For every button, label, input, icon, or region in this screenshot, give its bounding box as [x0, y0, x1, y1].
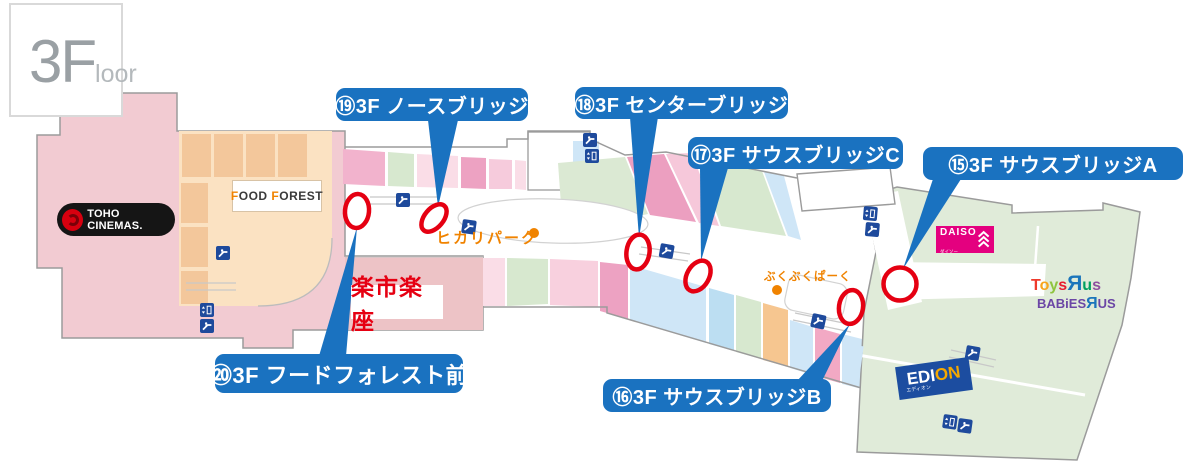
- food-forest-logo: FOOD FOREST: [232, 180, 322, 212]
- banner-20-food-forest-mae[interactable]: ⑳3F フードフォレスト前: [215, 354, 463, 393]
- toysrus-letter: u: [1082, 277, 1092, 294]
- toho-cinemas-logo: TOHO CINEMAS.: [57, 203, 175, 236]
- daiso-logo: DAISO ダイソー: [936, 226, 994, 253]
- toysrus-letter: T: [1031, 277, 1040, 294]
- babiesrus-r: Я: [1086, 295, 1098, 312]
- daiso-sub: ダイソー: [940, 249, 958, 254]
- food-forest-orest: OREST: [279, 189, 323, 203]
- edion-sub: エディオン: [898, 386, 931, 395]
- babiesrus-us: US: [1098, 296, 1116, 311]
- toysrus-letter-r: Я: [1067, 272, 1082, 295]
- bukubuku-park-label: ぶくぶくぱーく: [764, 268, 852, 284]
- edion-ed: EDI: [906, 367, 936, 388]
- bukubuku-park-dot: [772, 285, 782, 295]
- north-east-block: [797, 167, 895, 211]
- babiesrus-logo: BABiESЯUS: [1037, 295, 1116, 313]
- toho-cinemas-icon: [62, 209, 83, 231]
- toho-cinemas-label: TOHO CINEMAS.: [87, 208, 175, 232]
- rakuichi-rakuza-logo: 楽市楽座: [351, 285, 443, 319]
- marker-20: [344, 193, 371, 229]
- mall-map-canvas: [0, 0, 1191, 468]
- banner-16-south-bridge-b[interactable]: ⑯3F サウスブリッジB: [603, 379, 831, 412]
- banner-18-center-bridge[interactable]: ⑱3F センターブリッジ: [575, 87, 788, 119]
- floor-number: 3F: [29, 28, 95, 95]
- edion-on: ON: [934, 363, 962, 383]
- hikari-park-label: ヒカリパーク: [436, 227, 538, 248]
- floor-map-3f: 3Floor TOHO CINEMAS. FOOD FOREST 楽市楽座 ヒカ…: [0, 0, 1191, 468]
- food-forest-ood: OOD: [239, 189, 268, 203]
- marker-18: [624, 233, 652, 271]
- toysrus-letter: o: [1040, 277, 1050, 294]
- food-forest-f2: F: [271, 189, 279, 203]
- floor-badge: 3Floor: [9, 3, 123, 117]
- daiso-name: DAISO: [940, 227, 977, 238]
- daiso-chevrons-icon: [977, 229, 990, 251]
- banner-19-north-bridge[interactable]: ⑲3F ノースブリッジ: [336, 88, 528, 121]
- toysrus-letter: y: [1049, 277, 1058, 294]
- toysrus-letter: s: [1092, 277, 1101, 294]
- banner-15-south-bridge-a[interactable]: ⑮3F サウスブリッジA: [923, 147, 1183, 180]
- floor-suffix: loor: [95, 60, 137, 88]
- banner-17-south-bridge-c[interactable]: ⑰3F サウスブリッジC: [688, 137, 903, 169]
- toysrus-logo: ToysЯus: [1031, 272, 1101, 296]
- food-forest-f1: F: [231, 189, 239, 203]
- toysrus-letter: s: [1058, 277, 1067, 294]
- babiesrus-b1: BABiES: [1037, 296, 1086, 311]
